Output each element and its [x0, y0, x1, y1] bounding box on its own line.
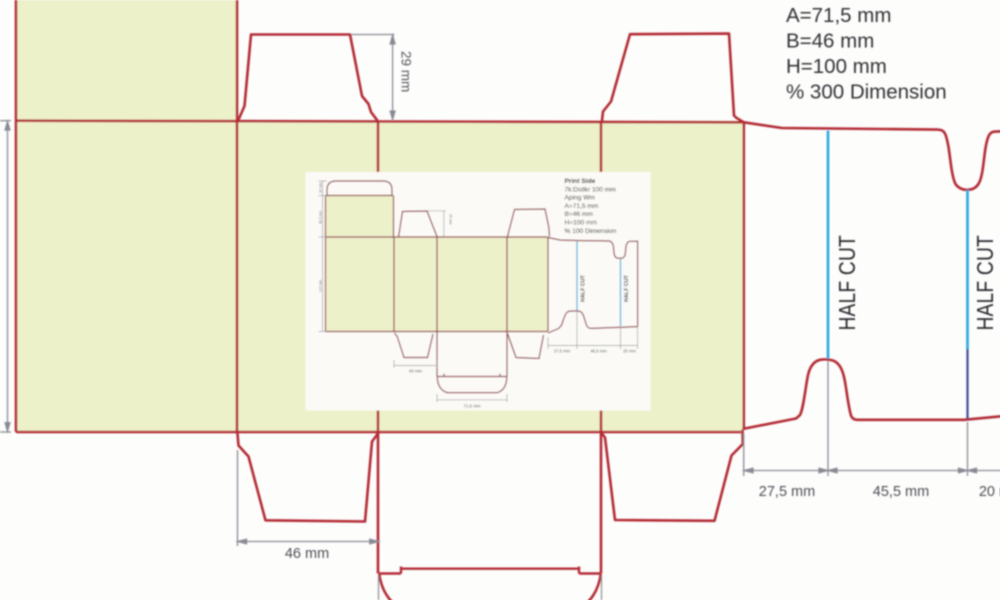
- svg-text:20 mm: 20 mm: [623, 349, 636, 354]
- svg-text:46,5 mm: 46,5 mm: [590, 349, 607, 354]
- svg-text:H=100 mm: H=100 mm: [786, 55, 887, 78]
- svg-text:% 300 Dimension: % 300 Dimension: [786, 81, 947, 104]
- svg-text:7k:Dstlkr 100 mm: 7k:Dstlkr 100 mm: [565, 186, 617, 193]
- svg-text:H=100 mm: H=100 mm: [565, 220, 598, 227]
- svg-text:HALF CUT: HALF CUT: [624, 274, 630, 302]
- svg-text:Print Side: Print Side: [565, 178, 596, 185]
- svg-text:% 100 Dimension: % 100 Dimension: [565, 228, 617, 235]
- svg-text:A=71,5 mm: A=71,5 mm: [565, 203, 599, 210]
- svg-text:B=46 mm: B=46 mm: [786, 30, 874, 53]
- svg-text:46 mm: 46 mm: [285, 546, 329, 562]
- svg-text:HALF CUT: HALF CUT: [581, 274, 587, 302]
- svg-text:29 mm: 29 mm: [449, 214, 453, 225]
- svg-text:20 mm: 20 mm: [979, 484, 1000, 500]
- svg-text:27,5 mm: 27,5 mm: [759, 484, 815, 500]
- svg-text:71,5 mm: 71,5 mm: [463, 404, 480, 409]
- svg-text:B=46 mm: B=46 mm: [565, 211, 594, 218]
- svg-text:HALF CUT: HALF CUT: [834, 235, 860, 330]
- svg-text:46 mm: 46 mm: [409, 369, 423, 374]
- svg-text:46,5 mm: 46,5 mm: [319, 211, 323, 224]
- svg-text:HALF CUT: HALF CUT: [972, 235, 998, 330]
- svg-text:A=71,5 mm: A=71,5 mm: [786, 4, 891, 27]
- svg-text:27,5 mm: 27,5 mm: [554, 349, 571, 354]
- svg-text:16 mm: 16 mm: [319, 182, 323, 193]
- svg-text:Aping Wm: Aping Wm: [565, 195, 596, 202]
- svg-text:45,5 mm: 45,5 mm: [873, 484, 929, 500]
- svg-text:100 mm: 100 mm: [319, 280, 323, 292]
- svg-text:29 mm: 29 mm: [399, 51, 414, 92]
